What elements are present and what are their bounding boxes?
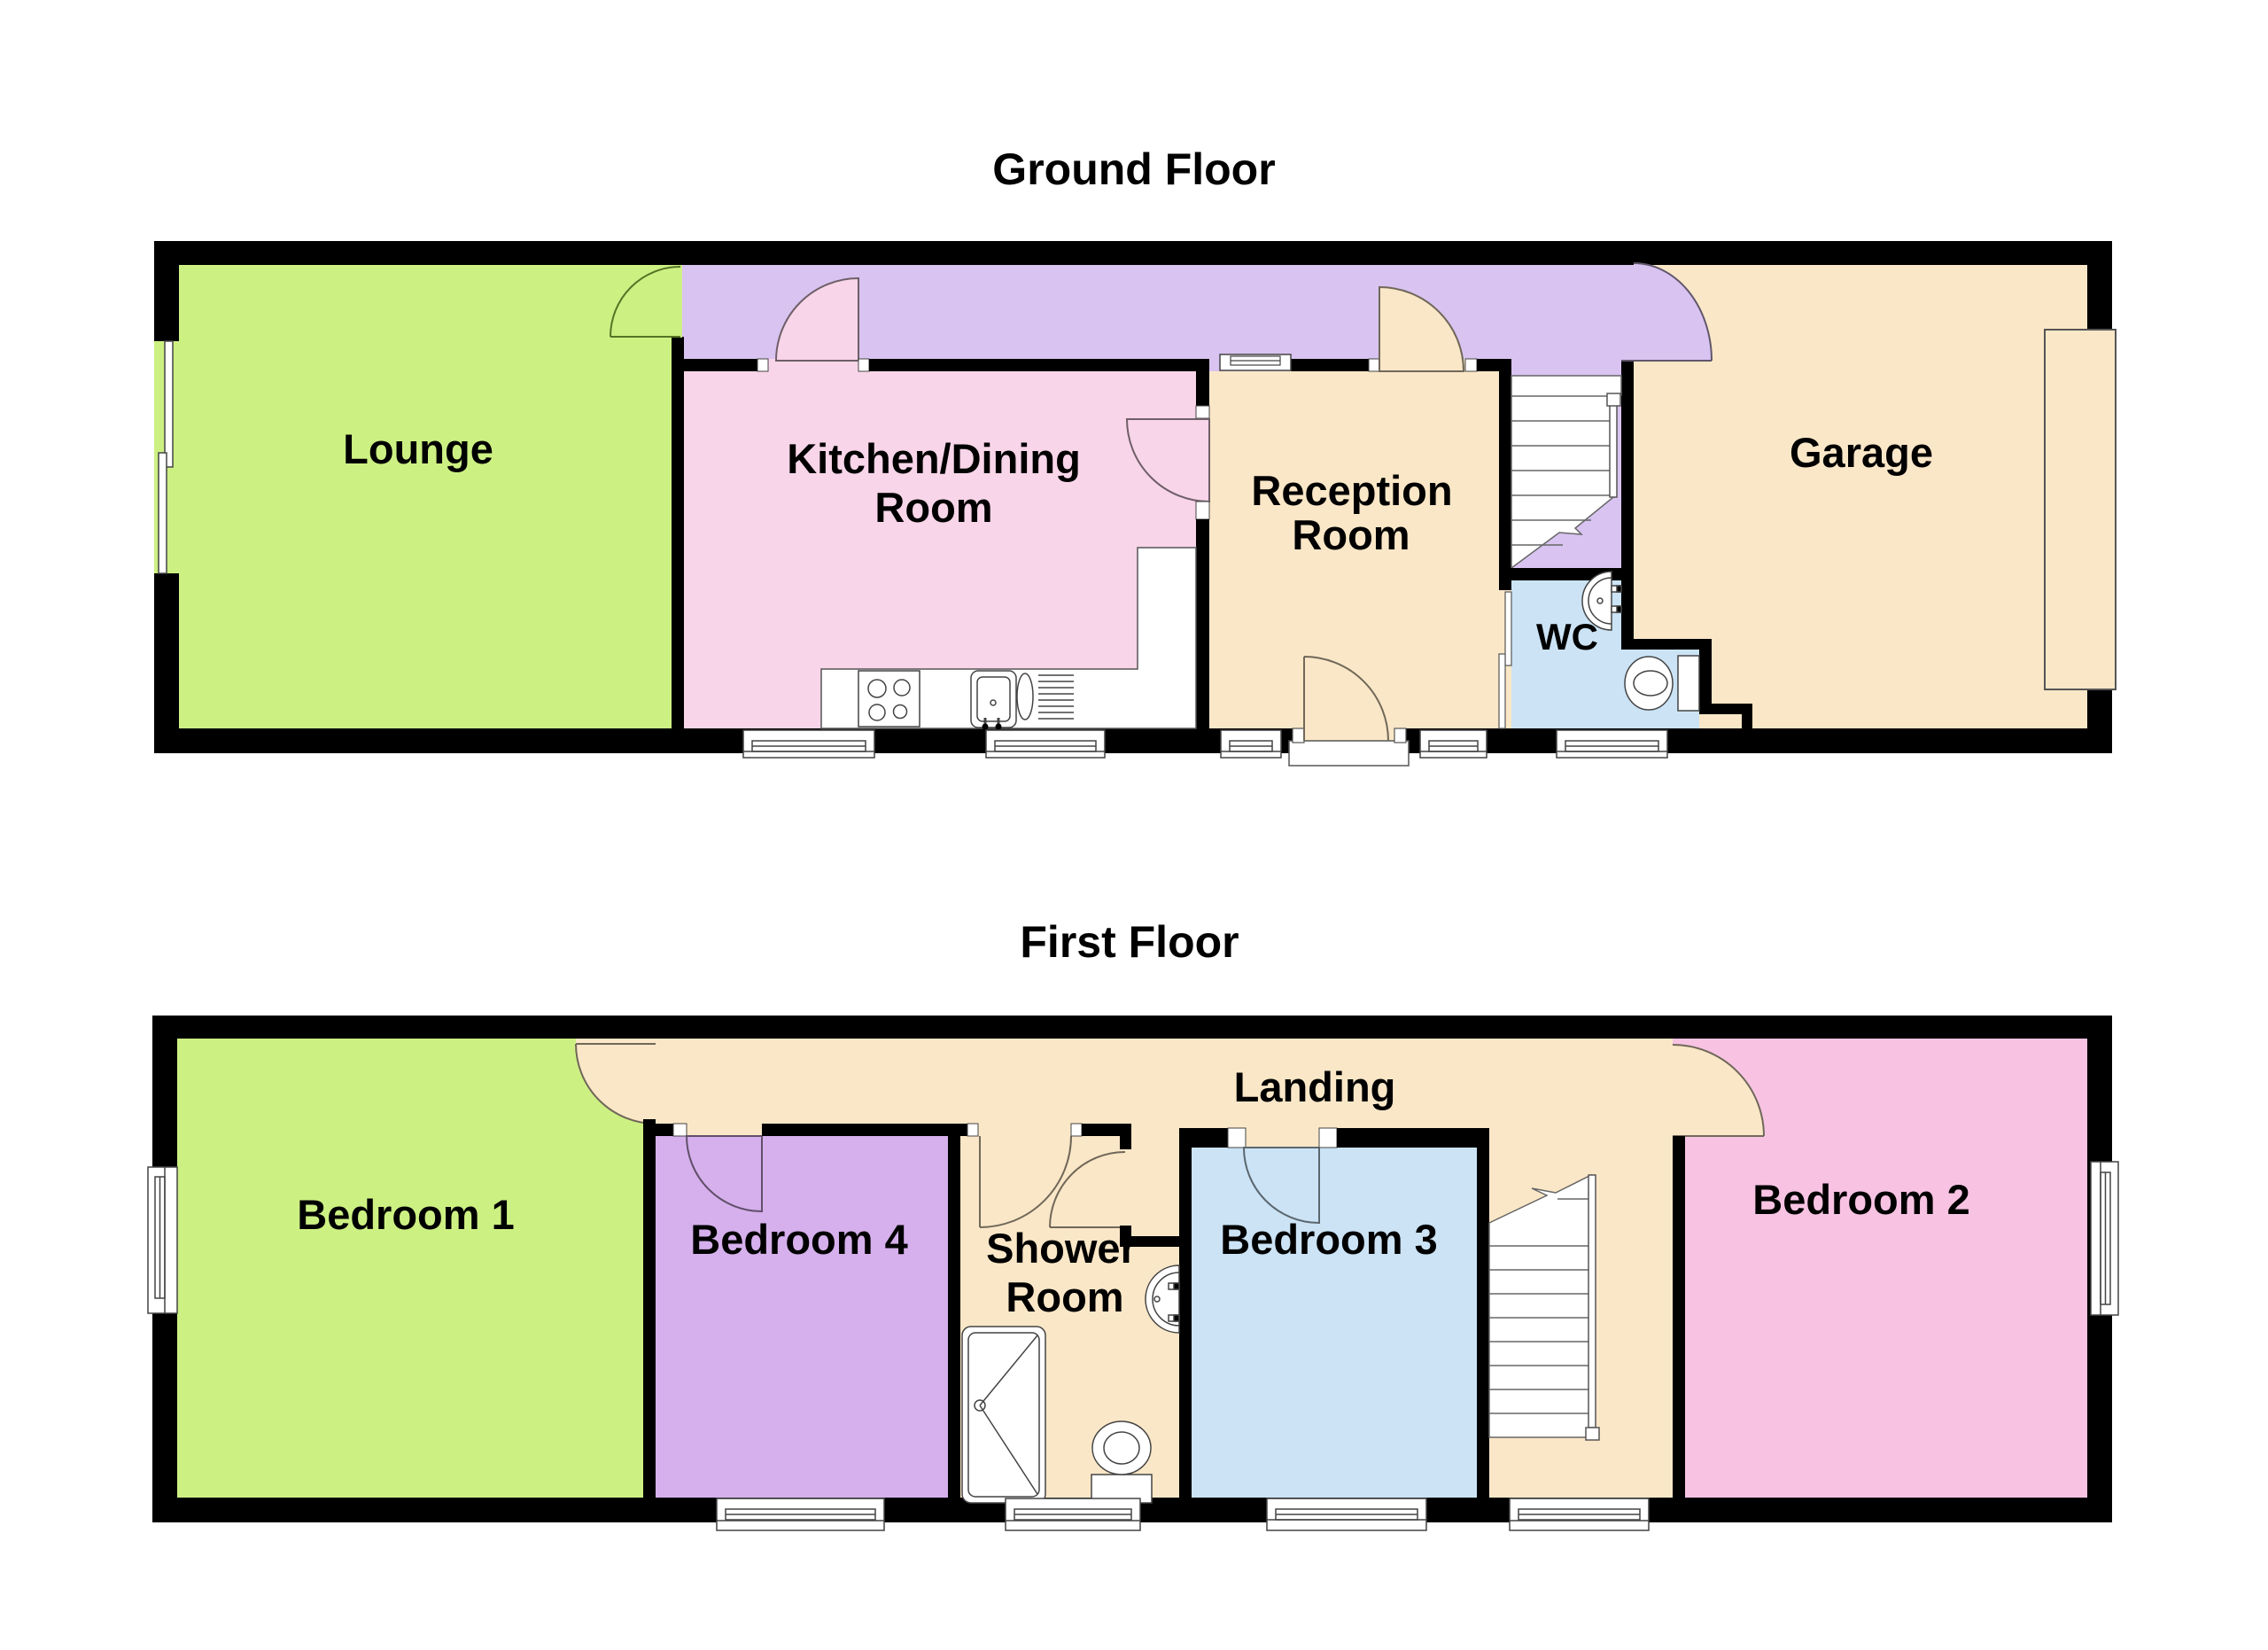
svg-text:Garage: Garage <box>1790 429 1933 476</box>
svg-text:Room: Room <box>1292 511 1410 558</box>
svg-text:Landing: Landing <box>1234 1063 1396 1110</box>
svg-text:Lounge: Lounge <box>343 425 493 472</box>
svg-text:Ground Floor: Ground Floor <box>992 144 1275 194</box>
svg-text:Bedroom 2: Bedroom 2 <box>1752 1176 1970 1223</box>
svg-text:Kitchen/Dining: Kitchen/Dining <box>787 435 1081 482</box>
svg-text:Bedroom 1: Bedroom 1 <box>297 1191 515 1238</box>
svg-text:Bedroom 4: Bedroom 4 <box>690 1216 908 1263</box>
svg-text:Reception: Reception <box>1251 467 1452 514</box>
svg-text:Bedroom 3: Bedroom 3 <box>1220 1216 1438 1263</box>
svg-text:Shower: Shower <box>986 1225 1137 1272</box>
svg-text:Room: Room <box>874 484 992 531</box>
svg-text:WC: WC <box>1536 616 1598 658</box>
svg-text:Room: Room <box>1006 1273 1123 1320</box>
svg-text:First Floor: First Floor <box>1020 917 1239 967</box>
